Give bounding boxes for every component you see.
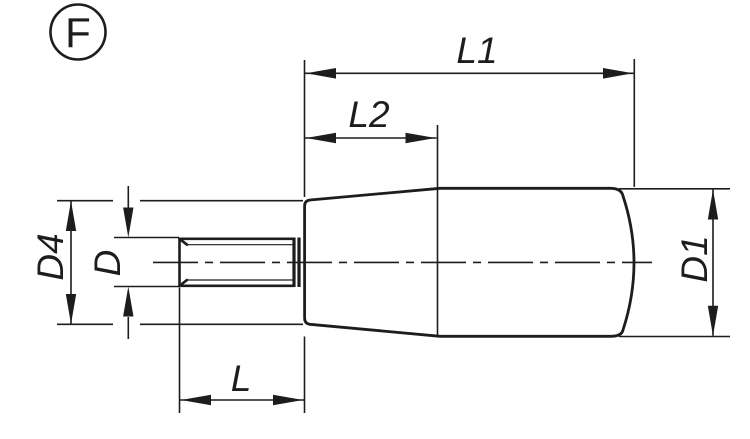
l2-arrow-right	[406, 133, 436, 144]
d-label: D	[87, 250, 128, 277]
d-arrow-bottom	[123, 287, 133, 317]
d1-arrow-bottom	[708, 306, 718, 336]
d-arrow-top	[123, 208, 133, 238]
d4-label: D4	[30, 233, 71, 280]
handle-dimension-drawing: F L1 L2	[0, 0, 750, 439]
l1-label: L1	[456, 30, 497, 71]
d1-arrow-top	[708, 190, 718, 220]
d4-arrow-top	[66, 201, 76, 231]
l-arrow-left	[181, 395, 211, 406]
d1-label: D1	[674, 235, 715, 282]
l1-arrow-left	[306, 68, 336, 79]
dimension-l: L	[180, 288, 305, 414]
view-marker-label: F	[65, 9, 91, 56]
l2-label: L2	[348, 94, 390, 135]
technical-drawing-canvas: F L1 L2	[0, 0, 750, 439]
view-marker: F	[51, 5, 106, 60]
l-arrow-right	[273, 395, 303, 406]
l1-arrow-right	[603, 68, 633, 79]
dimension-l2: L2	[305, 94, 437, 143]
l-label: L	[231, 358, 252, 399]
l2-arrow-left	[306, 133, 336, 144]
d4-arrow-bottom	[66, 294, 76, 324]
